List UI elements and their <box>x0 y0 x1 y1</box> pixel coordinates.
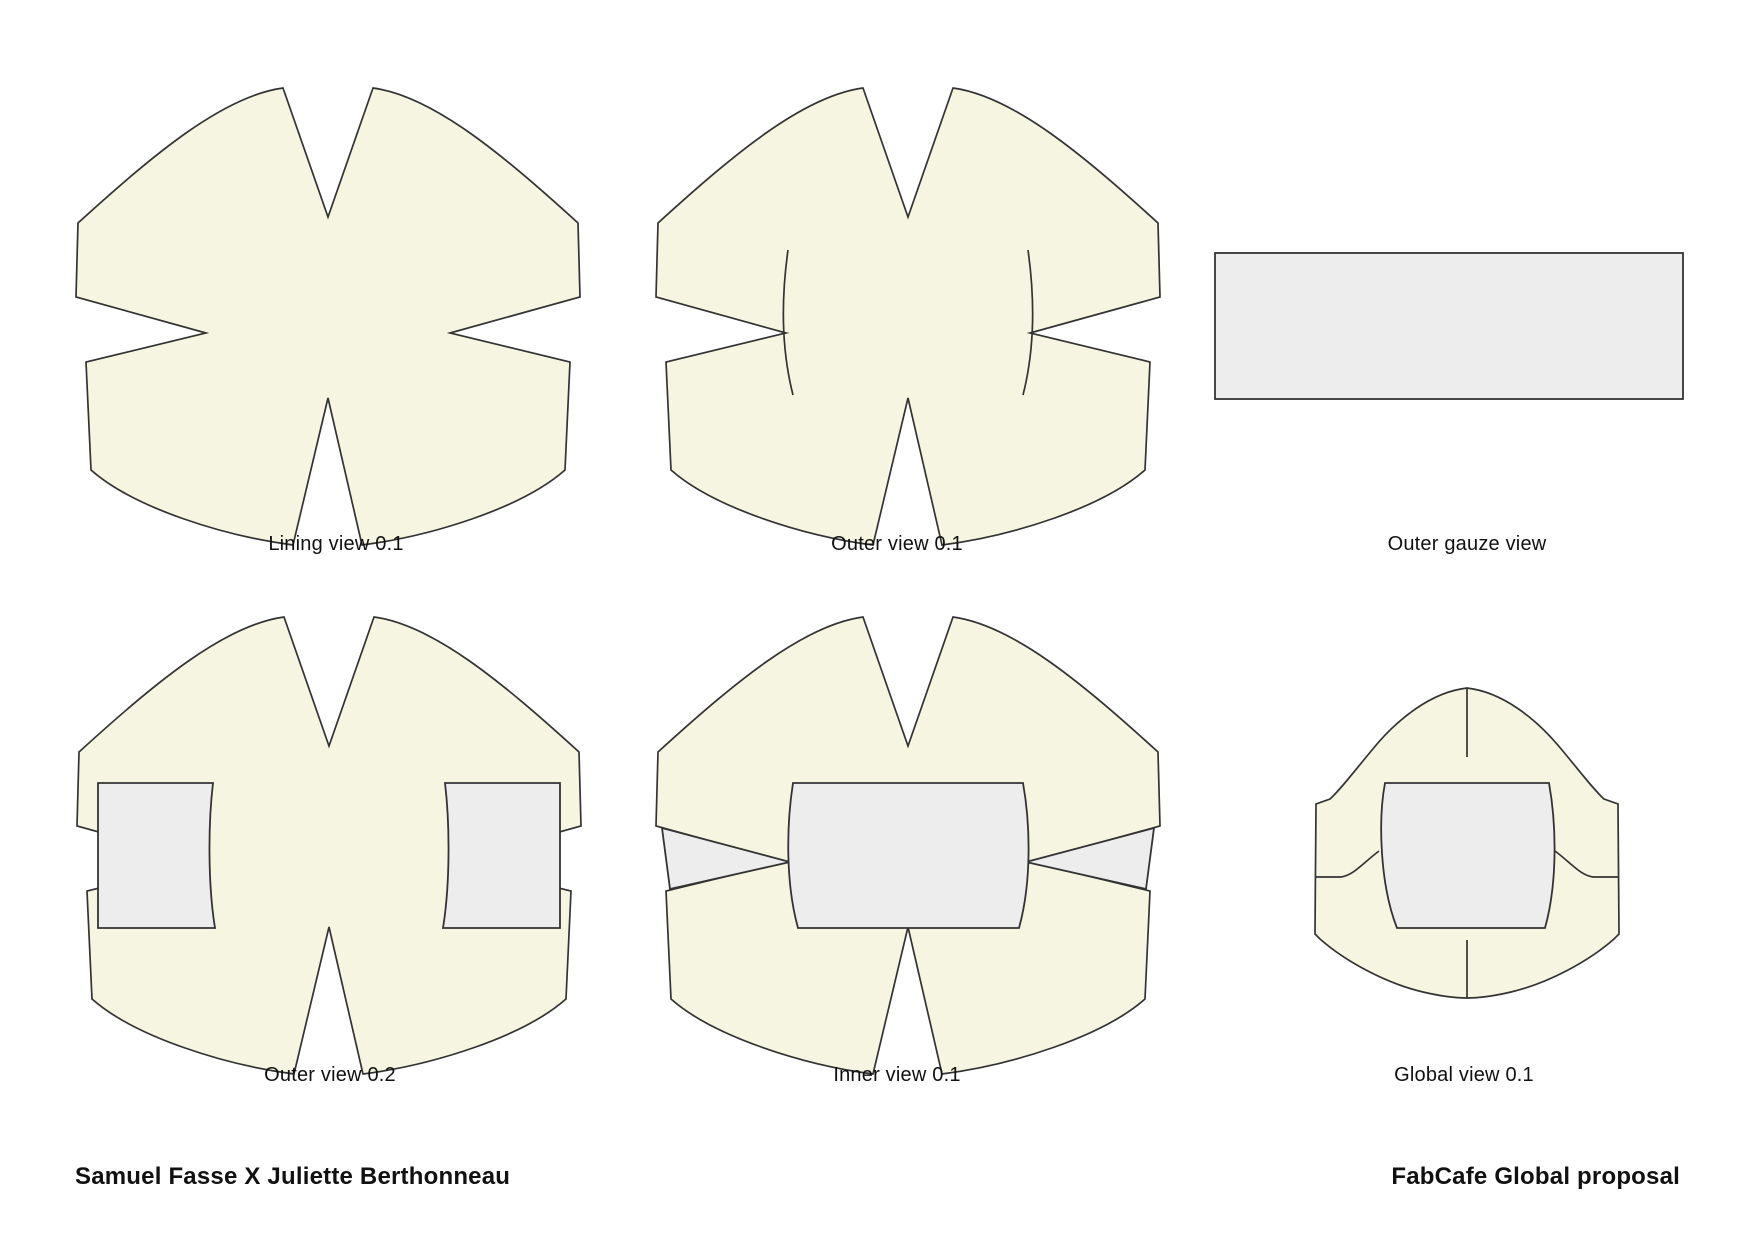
caption-outer-view-01: Outer view 0.1 <box>687 533 1107 556</box>
lining-pattern-shape <box>76 88 580 545</box>
caption-outer-view-02: Outer view 0.2 <box>120 1064 540 1087</box>
outer-view-02-figure <box>77 617 581 1074</box>
proposal-credit: FabCafe Global proposal <box>1280 1163 1680 1191</box>
pocket-square-left <box>98 783 215 928</box>
pattern-sheet <box>0 0 1754 1240</box>
outer-gauze-figure <box>1215 253 1683 399</box>
caption-outer-gauze-view: Outer gauze view <box>1257 533 1677 556</box>
caption-lining-view: Lining view 0.1 <box>126 533 546 556</box>
authors-credit: Samuel Fasse X Juliette Berthonneau <box>75 1163 510 1191</box>
inner-view-figure <box>656 617 1160 1074</box>
caption-inner-view: Inner view 0.1 <box>687 1064 1107 1087</box>
lining-view-figure <box>76 88 580 545</box>
pocket-square-right <box>443 783 560 928</box>
outer-01-pattern-shape <box>656 88 1160 545</box>
caption-global-view: Global view 0.1 <box>1254 1064 1674 1087</box>
gauze-rectangle <box>1215 253 1683 399</box>
inner-rectangle <box>788 783 1028 928</box>
outer-view-01-figure <box>656 88 1160 545</box>
global-panel <box>1381 783 1554 928</box>
global-view-figure <box>1315 688 1619 998</box>
